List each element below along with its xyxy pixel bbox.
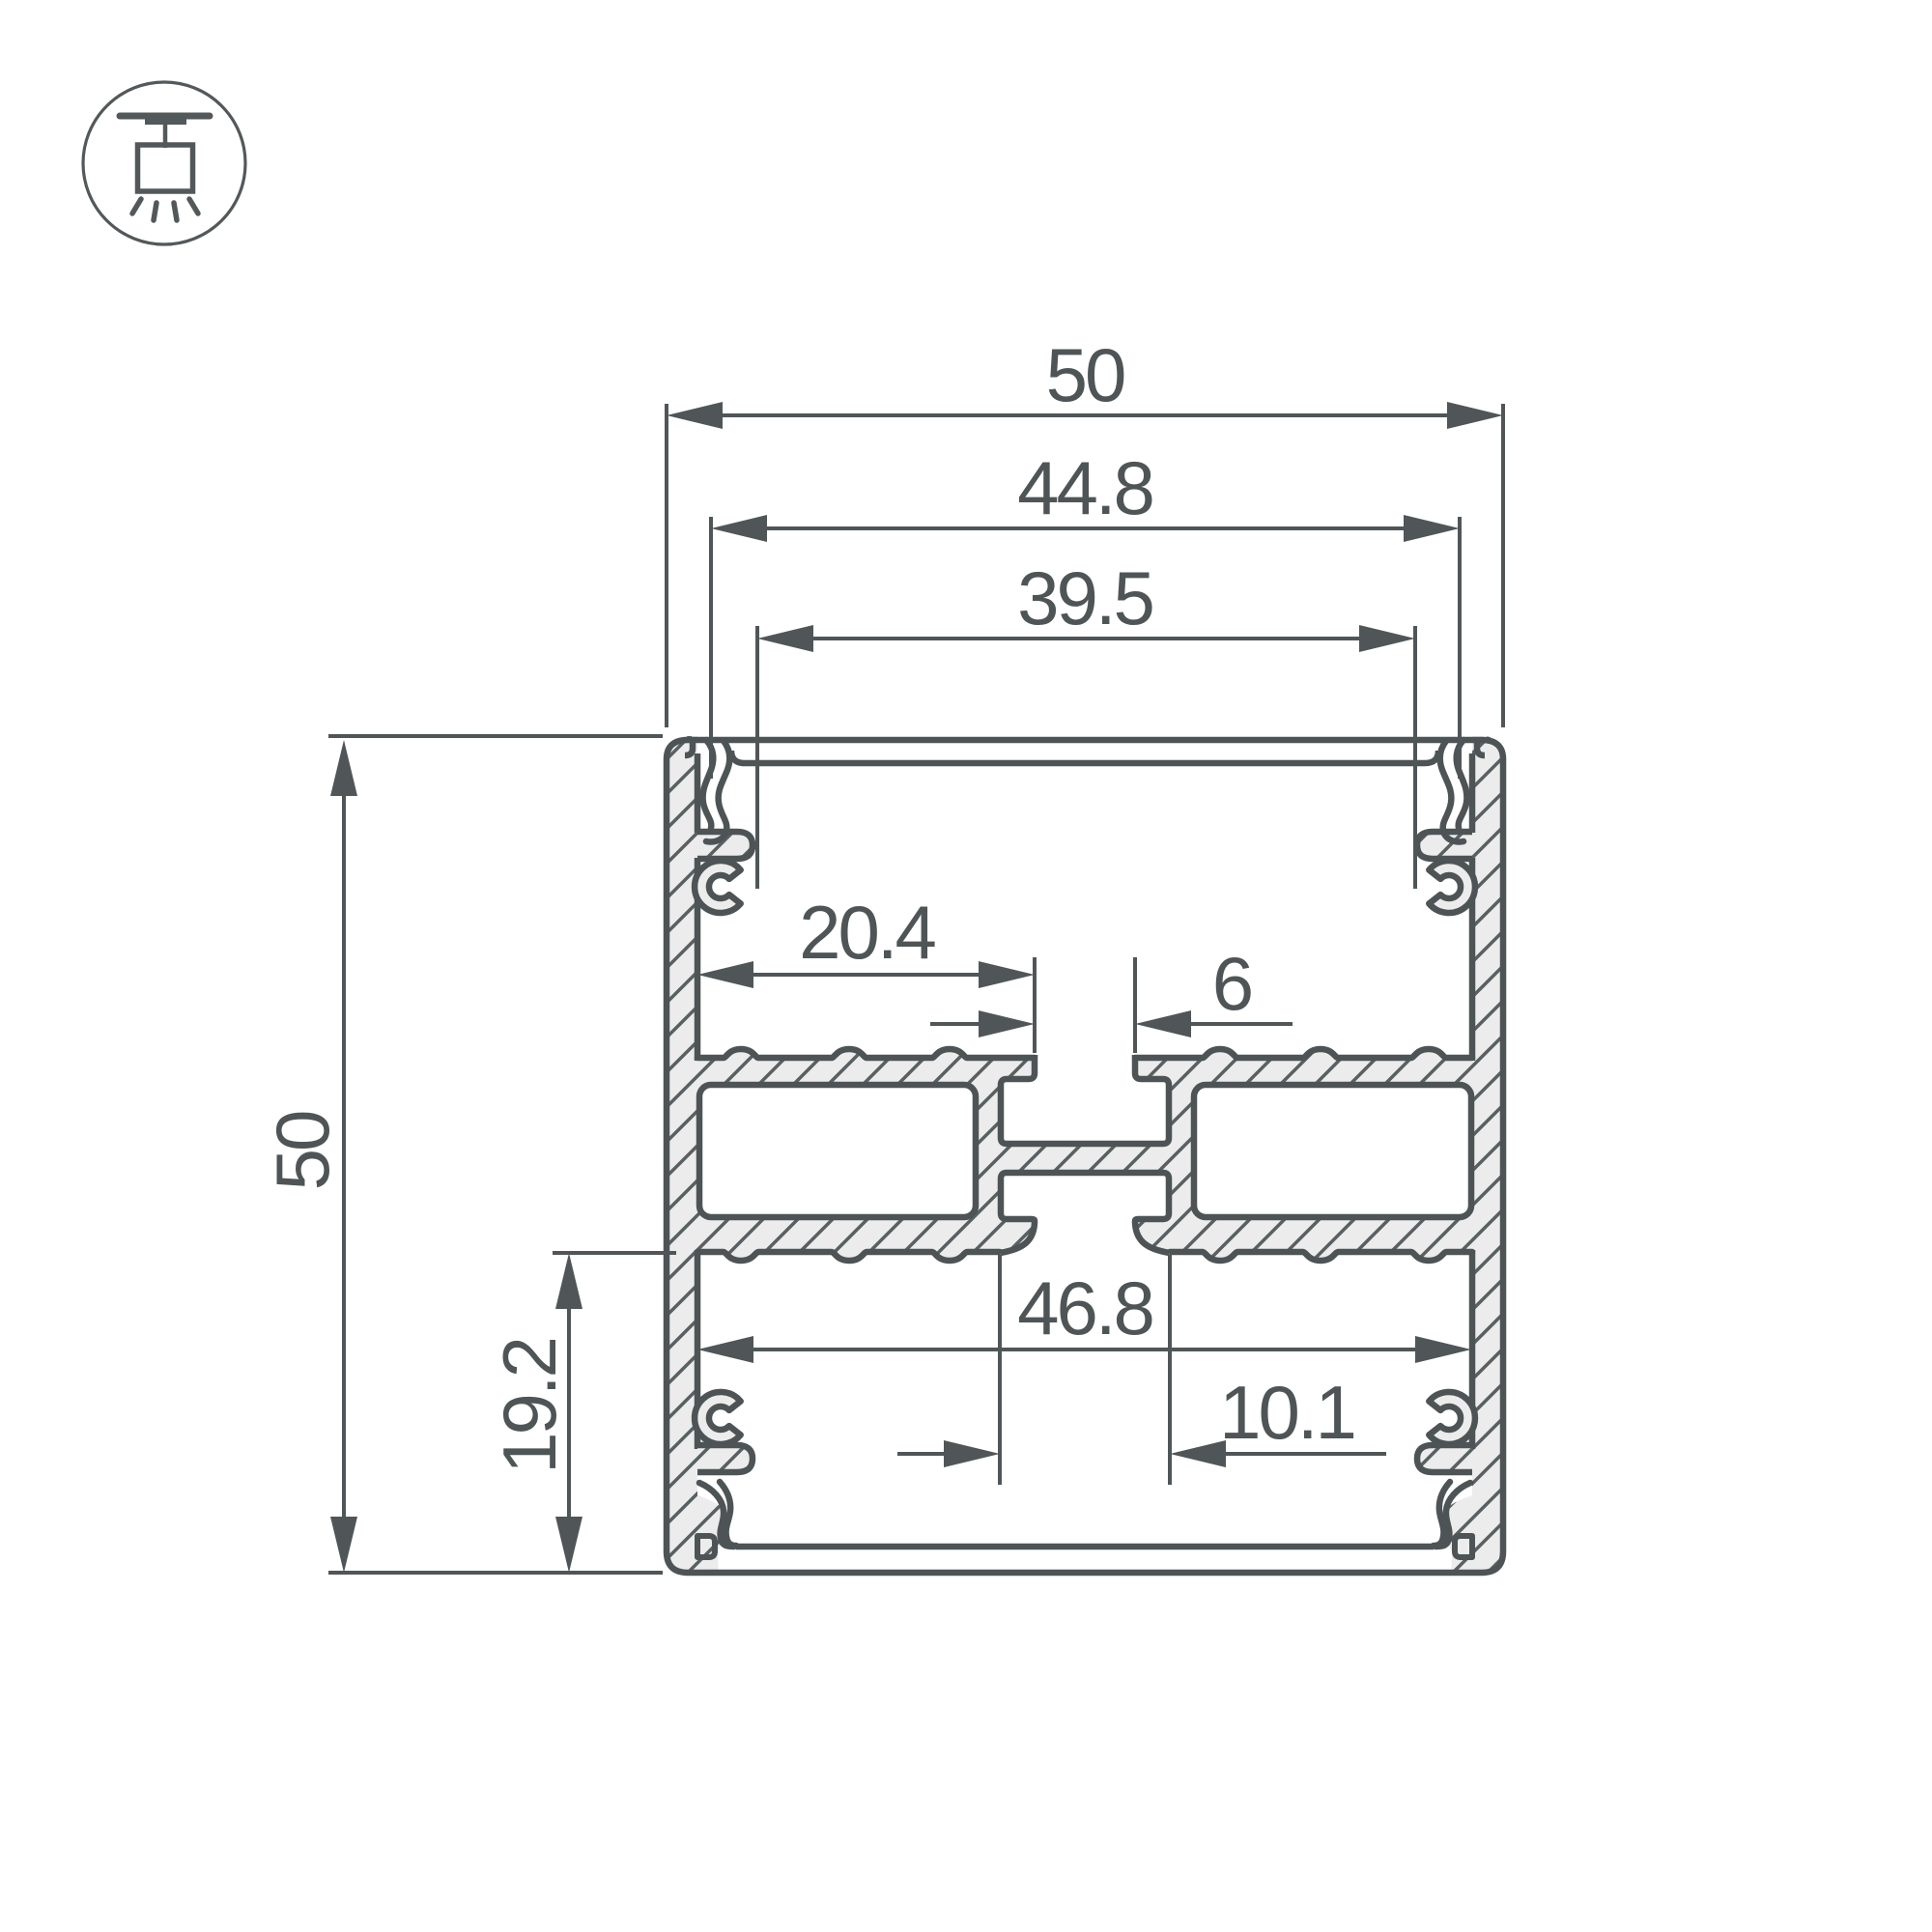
svg-text:39.5: 39.5	[1017, 555, 1152, 640]
svg-text:19.2: 19.2	[487, 1339, 572, 1474]
svg-text:20.4: 20.4	[799, 890, 935, 975]
svg-text:10.1: 10.1	[1219, 1370, 1354, 1455]
svg-text:50: 50	[260, 1112, 345, 1190]
svg-text:44.8: 44.8	[1017, 445, 1152, 530]
svg-text:46.8: 46.8	[1017, 1265, 1152, 1350]
svg-text:50: 50	[1046, 332, 1124, 417]
svg-text:6: 6	[1212, 941, 1251, 1026]
